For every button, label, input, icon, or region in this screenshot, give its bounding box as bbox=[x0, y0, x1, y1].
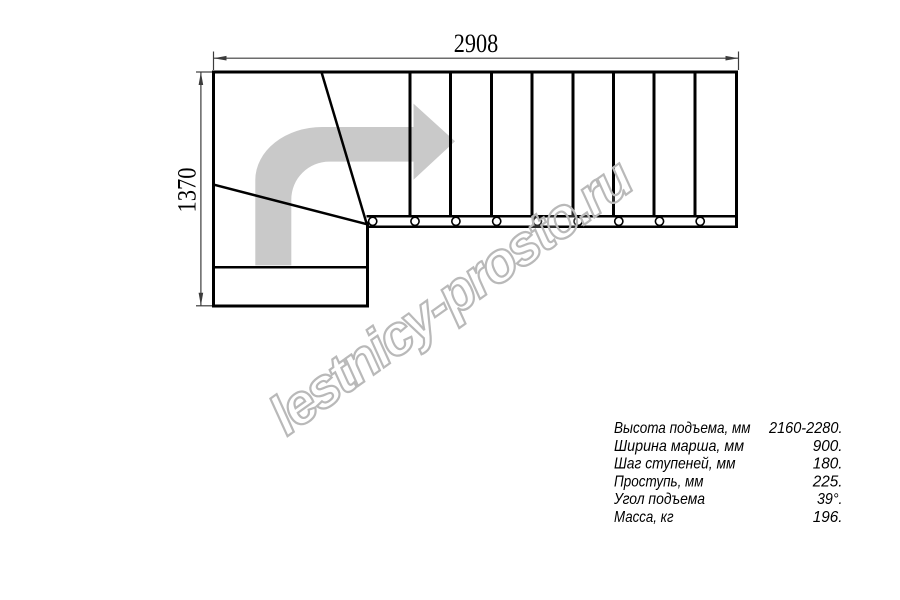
svg-text:196.: 196. bbox=[813, 509, 843, 526]
svg-text:Проступь, мм: Проступь, мм bbox=[614, 473, 704, 490]
svg-text:180.: 180. bbox=[813, 456, 843, 473]
svg-text:2908: 2908 bbox=[454, 28, 499, 58]
svg-text:Шаг ступеней, мм: Шаг ступеней, мм bbox=[614, 456, 736, 473]
svg-text:Масса, кг: Масса, кг bbox=[614, 509, 674, 526]
svg-text:900.: 900. bbox=[813, 438, 843, 455]
svg-text:225.: 225. bbox=[812, 473, 843, 490]
svg-text:39°.: 39°. bbox=[817, 491, 843, 508]
svg-text:2160-2280.: 2160-2280. bbox=[768, 420, 842, 437]
svg-text:1370: 1370 bbox=[173, 168, 202, 213]
svg-text:Высота подъема, мм: Высота подъема, мм bbox=[614, 420, 751, 437]
svg-text:Ширина марша, мм: Ширина марша, мм bbox=[614, 438, 744, 455]
svg-text:Угол подъема: Угол подъема bbox=[613, 491, 705, 508]
